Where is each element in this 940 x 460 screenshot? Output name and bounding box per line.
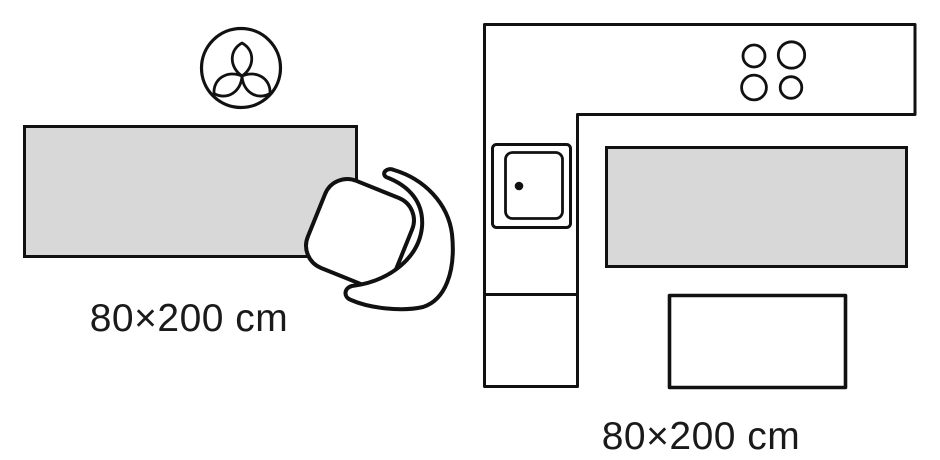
rug-size-label-left: 80×200 cm — [90, 297, 289, 341]
rug-size-label-right: 80×200 cm — [602, 415, 801, 459]
sink-drain-dot — [515, 182, 524, 191]
living-room-scene — [25, 29, 453, 310]
plant-icon — [202, 29, 281, 108]
table-outline — [670, 296, 846, 388]
stove-burners-icon — [742, 42, 805, 100]
rug-right-swatch — [607, 148, 907, 267]
rug-placement-diagram: 80×200 cm 80×200 cm — [0, 0, 940, 460]
diagram-artwork — [0, 0, 940, 460]
sink-icon — [493, 145, 571, 228]
kitchen-scene — [485, 25, 916, 388]
